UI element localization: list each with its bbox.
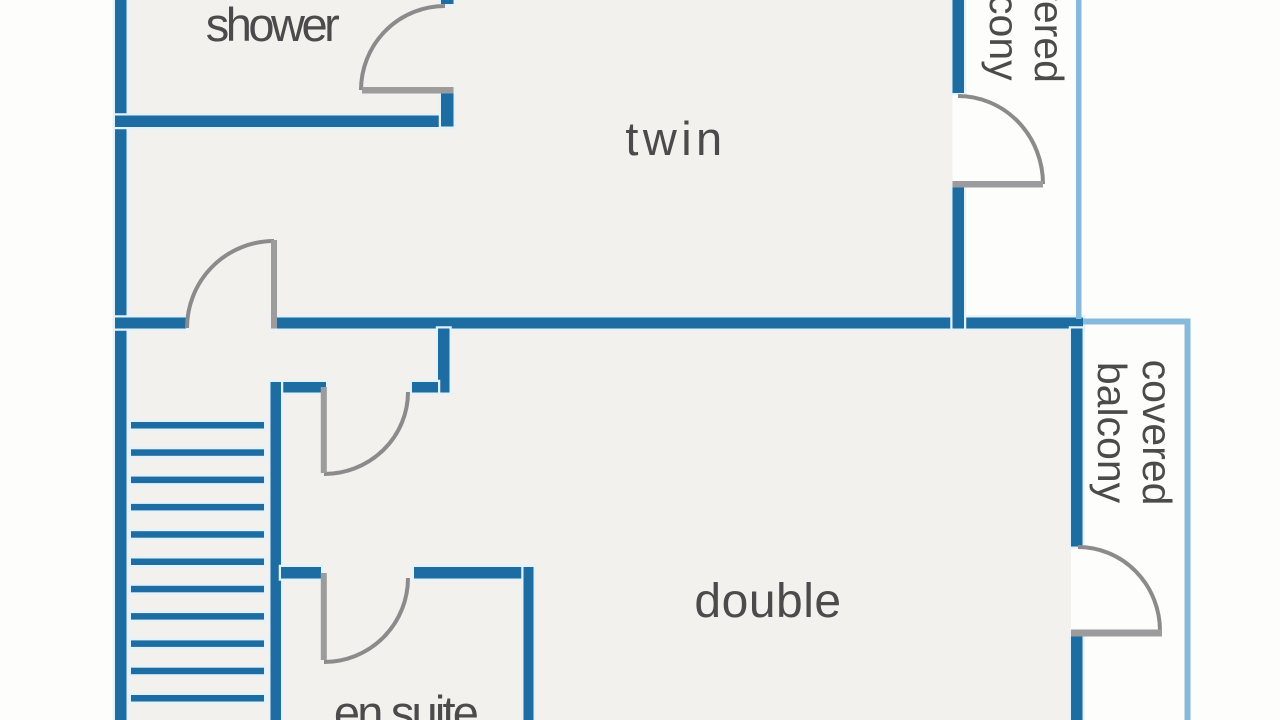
- svg-text:twin: twin: [625, 112, 726, 165]
- svg-text:double: double: [694, 575, 841, 628]
- svg-text:shower: shower: [206, 0, 339, 51]
- svg-text:balcony: balcony: [1089, 362, 1135, 504]
- svg-text:en suite: en suite: [334, 686, 478, 720]
- svg-text:covered: covered: [1134, 360, 1180, 506]
- svg-text:covered: covered: [1026, 0, 1072, 83]
- svg-text:balcony: balcony: [981, 0, 1027, 81]
